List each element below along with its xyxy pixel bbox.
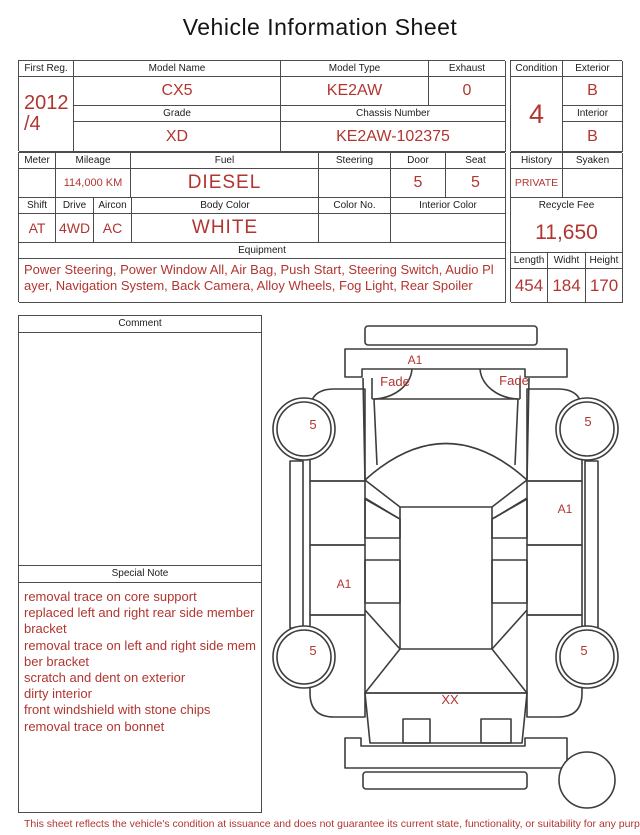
diagram-label-headlight-right: Fade — [499, 373, 529, 388]
exhaust-label: Exhaust — [429, 61, 505, 77]
note-line: replaced left and right rear side member… — [24, 605, 257, 637]
window-rear-right — [492, 560, 527, 603]
front-bumper — [345, 349, 567, 377]
special-note-list: removal trace on core supportreplaced le… — [19, 583, 261, 735]
diagram-label-door-right: A1 — [558, 502, 573, 516]
comment-box: Comment Special Note removal trace on co… — [18, 315, 262, 813]
length-value: 454 — [511, 269, 547, 302]
first-reg-value-year: 2012 — [24, 93, 69, 114]
history-value: PRIVATE — [511, 169, 562, 197]
history-cell: History PRIVATE — [511, 153, 563, 198]
aircon-cell: Aircon AC — [94, 198, 132, 243]
steering-value — [319, 169, 390, 197]
spec-table: Meter Mileage 114,000 KM Fuel DIESEL Ste… — [18, 152, 505, 302]
recycle-fee-value: 11,650 — [511, 213, 622, 252]
color-no-value — [319, 214, 390, 242]
meter-label: Meter — [19, 153, 55, 169]
color-no-label: Color No. — [319, 198, 390, 214]
shift-cell: Shift AT — [19, 198, 56, 243]
exhaust-cell: Exhaust 0 — [429, 61, 506, 106]
diagram-label-wheel-front-right: 5 — [584, 414, 591, 429]
body-color-cell: Body Color WHITE — [132, 198, 319, 243]
exterior-cell: Exterior B — [563, 61, 623, 106]
fuel-cell: Fuel DIESEL — [131, 153, 319, 198]
interior-color-label: Interior Color — [391, 198, 505, 214]
first-reg-value-month: /4 — [24, 114, 41, 135]
fuel-label: Fuel — [131, 153, 318, 169]
model-name-cell: Model Name CX5 — [74, 61, 281, 106]
diagram-label-wheel-rear-left: 5 — [309, 643, 316, 658]
diagram-label-headlight-left: Fade — [380, 374, 410, 389]
chassis-number-label: Chassis Number — [281, 106, 505, 122]
door-cell: Door 5 — [391, 153, 446, 198]
window-front-left — [365, 499, 400, 538]
diagram-label-wheel-rear-right: 5 — [580, 643, 587, 658]
model-type-cell: Model Type KE2AW — [281, 61, 429, 106]
drive-cell: Drive 4WD — [56, 198, 94, 243]
model-name-value: CX5 — [74, 77, 280, 105]
body-color-label: Body Color — [132, 198, 318, 214]
c-pillar-right — [492, 610, 527, 649]
model-identity-table: First Reg. 2012 /4 Model Name CX5 Model … — [18, 60, 505, 151]
special-note-label: Special Note — [19, 565, 261, 583]
spare-tire — [559, 752, 615, 808]
page-title: Vehicle Information Sheet — [0, 14, 640, 41]
sill-right — [585, 461, 598, 628]
exhaust-value: 0 — [429, 77, 505, 105]
model-type-value: KE2AW — [281, 77, 428, 105]
c-pillar-left — [365, 610, 400, 649]
width-value: 184 — [548, 269, 585, 302]
grade-value: XD — [74, 122, 280, 151]
steering-cell: Steering — [319, 153, 391, 198]
equipment-cell: Equipment Power Steering, Power Window A… — [19, 243, 506, 303]
history-fee-table: History PRIVATE Syaken Recycle Fee 11,65… — [510, 152, 622, 302]
height-value: 170 — [586, 269, 622, 302]
model-type-label: Model Type — [281, 61, 428, 77]
note-line: removal trace on core support — [24, 589, 257, 605]
window-rear-left — [365, 560, 400, 603]
interior-color-cell: Interior Color — [391, 198, 506, 243]
windshield — [365, 444, 527, 508]
seat-label: Seat — [446, 153, 505, 169]
note-line: removal trace on bonnet — [24, 719, 257, 735]
width-cell: Widht 184 — [548, 253, 586, 303]
steering-label: Steering — [319, 153, 390, 169]
meter-value — [19, 169, 55, 197]
recycle-fee-cell: Recycle Fee 11,650 — [511, 198, 623, 253]
disclaimer-text: This sheet reflects the vehicle's condit… — [24, 818, 628, 830]
door-front-right — [527, 481, 582, 545]
height-label: Height — [586, 253, 622, 269]
condition-value: 4 — [511, 77, 562, 151]
front-bumper-strip — [365, 326, 537, 345]
exterior-label: Exterior — [563, 61, 622, 77]
drive-value: 4WD — [56, 214, 93, 242]
interior-color-value — [391, 214, 505, 242]
sill-left — [290, 461, 303, 628]
condition-table: Condition 4 Exterior B Interior B — [510, 60, 622, 151]
note-line: scratch and dent on exterior — [24, 670, 257, 686]
height-cell: Height 170 — [586, 253, 623, 303]
syaken-value — [563, 169, 622, 197]
aircon-label: Aircon — [94, 198, 131, 214]
grade-label: Grade — [74, 106, 280, 122]
window-front-right — [492, 499, 527, 538]
fuel-value: DIESEL — [131, 169, 318, 197]
condition-cell: Condition 4 — [511, 61, 563, 152]
chassis-number-cell: Chassis Number KE2AW-102375 — [281, 106, 506, 152]
length-label: Length — [511, 253, 547, 269]
comment-value — [19, 333, 261, 565]
mileage-value: 114,000 KM — [56, 169, 130, 197]
exterior-value: B — [563, 77, 622, 105]
door-front-left — [310, 481, 365, 545]
vehicle-information-sheet: Vehicle Information Sheet First Reg. 201… — [0, 0, 640, 835]
door-label: Door — [391, 153, 445, 169]
diagram-label-door-left: A1 — [337, 577, 352, 591]
diagram-label-front-bumper: A1 — [408, 353, 423, 367]
aircon-value: AC — [94, 214, 131, 242]
door-rear-right — [527, 545, 582, 615]
syaken-cell: Syaken — [563, 153, 623, 198]
shift-value: AT — [19, 214, 55, 242]
condition-label: Condition — [511, 61, 562, 77]
diagram-label-wheel-front-left: 5 — [309, 417, 316, 432]
note-line: front windshield with stone chips — [24, 702, 257, 718]
rear-glass — [365, 649, 527, 693]
diagram-label-rear-gate: XX — [441, 692, 459, 707]
seat-value: 5 — [446, 169, 505, 197]
note-line: removal trace on left and right side mem… — [24, 638, 257, 670]
mileage-cell: Mileage 114,000 KM — [56, 153, 131, 198]
mileage-label: Mileage — [56, 153, 130, 169]
interior-label: Interior — [563, 106, 622, 122]
length-cell: Length 454 — [511, 253, 548, 303]
drive-label: Drive — [56, 198, 93, 214]
interior-value: B — [563, 122, 622, 151]
equipment-value: Power Steering, Power Window All, Air Ba… — [19, 259, 505, 297]
interior-cell: Interior B — [563, 106, 623, 152]
model-name-label: Model Name — [74, 61, 280, 77]
width-label: Widht — [548, 253, 585, 269]
comment-label: Comment — [19, 316, 261, 333]
history-label: History — [511, 153, 562, 169]
car-damage-diagram: A1 Fade Fade 5 5 A1 A1 5 5 XX — [270, 315, 640, 815]
seat-cell: Seat 5 — [446, 153, 506, 198]
first-reg-cell: First Reg. 2012 /4 — [19, 61, 74, 152]
note-line: dirty interior — [24, 686, 257, 702]
meter-cell: Meter — [19, 153, 56, 198]
grade-cell: Grade XD — [74, 106, 281, 152]
body-color-value: WHITE — [132, 214, 318, 242]
first-reg-label: First Reg. — [19, 61, 73, 77]
syaken-label: Syaken — [563, 153, 622, 169]
rear-bumper-strip — [363, 772, 527, 789]
chassis-number-value: KE2AW-102375 — [281, 122, 505, 151]
recycle-fee-label: Recycle Fee — [511, 198, 622, 213]
door-value: 5 — [391, 169, 445, 197]
color-no-cell: Color No. — [319, 198, 391, 243]
shift-label: Shift — [19, 198, 55, 214]
equipment-label: Equipment — [19, 243, 505, 259]
